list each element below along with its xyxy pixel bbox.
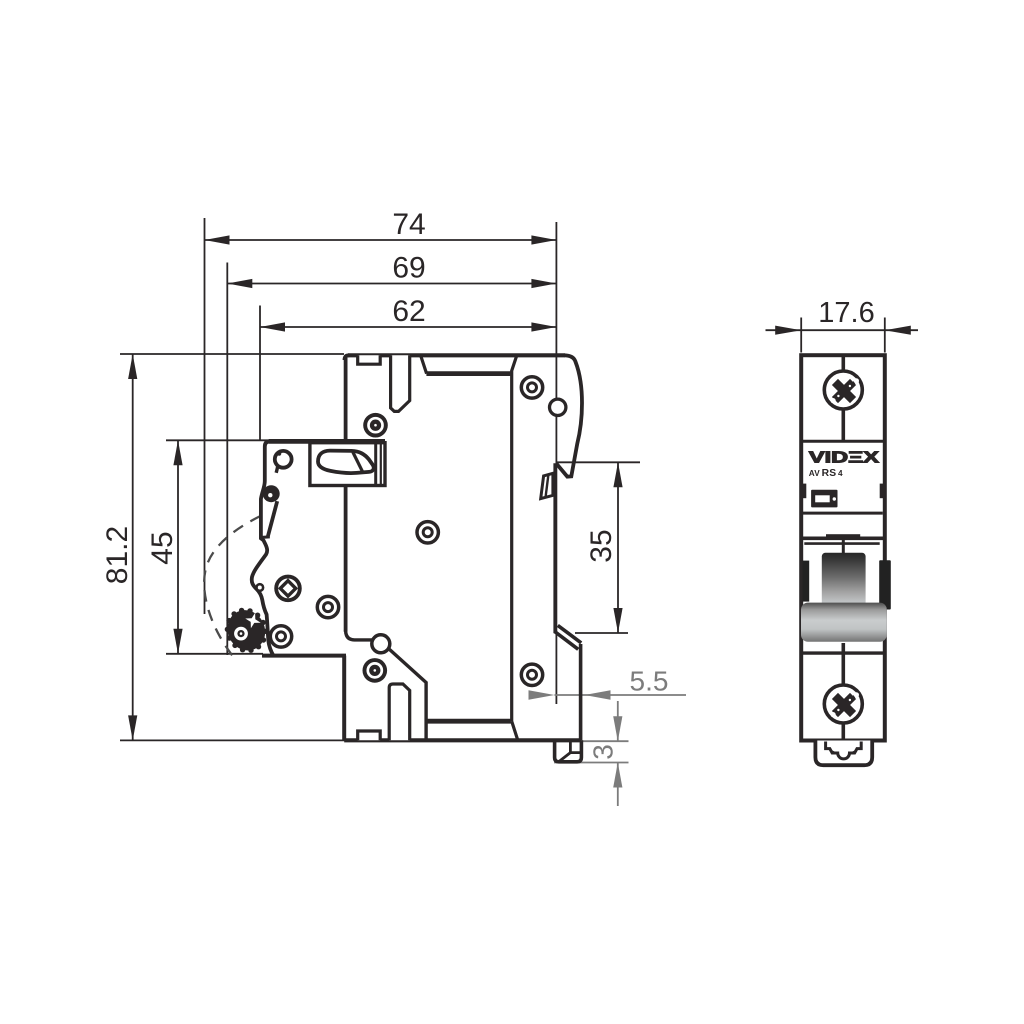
svg-text:VIDΞX: VIDΞX [809, 450, 879, 467]
svg-text:45: 45 [146, 531, 179, 564]
svg-text:69: 69 [392, 252, 425, 285]
svg-text:35: 35 [585, 529, 618, 562]
svg-text:17.6: 17.6 [818, 297, 874, 329]
svg-text:5.5: 5.5 [630, 666, 669, 697]
svg-text:74: 74 [392, 208, 425, 241]
svg-text:AVRS4: AVRS4 [809, 468, 843, 479]
svg-text:62: 62 [392, 295, 425, 328]
svg-text:3: 3 [588, 744, 619, 760]
svg-text:81.2: 81.2 [101, 526, 134, 584]
